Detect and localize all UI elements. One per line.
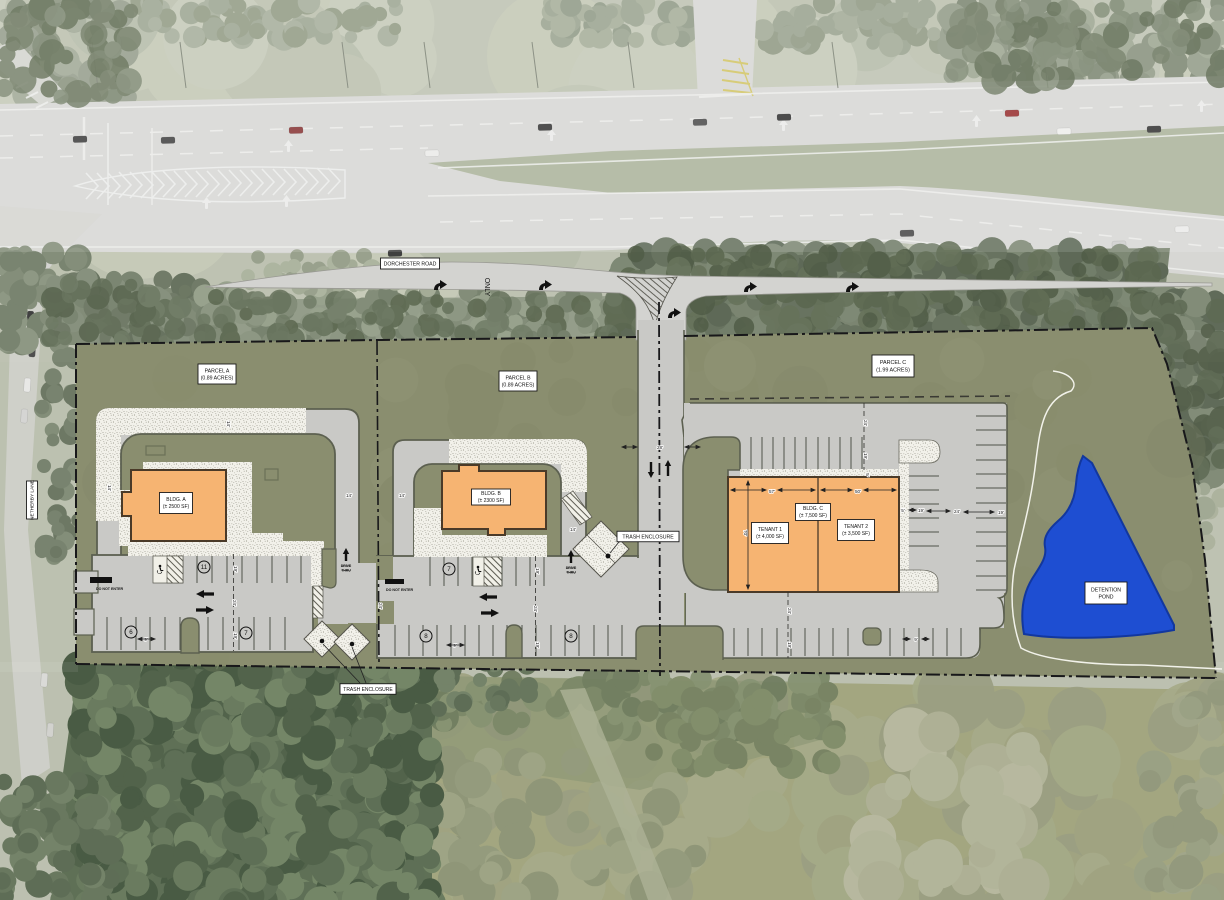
- svg-text:19': 19': [535, 568, 540, 574]
- svg-text:BLDG. B: BLDG. B: [481, 491, 501, 497]
- svg-text:14': 14': [226, 421, 231, 427]
- svg-text:THRU: THRU: [566, 571, 576, 575]
- svg-text:11: 11: [201, 564, 208, 571]
- svg-text:19': 19': [863, 453, 868, 459]
- svg-text:14': 14': [346, 493, 352, 498]
- svg-text:TENANT 1: TENANT 1: [758, 527, 782, 533]
- svg-text:THRU: THRU: [341, 569, 351, 573]
- svg-text:(0.89 ACRES): (0.89 ACRES): [502, 382, 535, 388]
- svg-text:19': 19': [787, 642, 792, 648]
- svg-text:24': 24': [863, 420, 868, 426]
- svg-text:7: 7: [244, 630, 248, 637]
- svg-text:(1.99 ACRES): (1.99 ACRES): [876, 368, 910, 374]
- svg-text:24': 24': [954, 509, 960, 514]
- svg-text:9': 9': [144, 637, 148, 642]
- svg-text:BLDG. C: BLDG. C: [803, 506, 823, 512]
- svg-text:(± 7,500 SF): (± 7,500 SF): [799, 513, 827, 519]
- svg-text:9': 9': [914, 637, 918, 642]
- svg-text:DO NOT ENTER: DO NOT ENTER: [386, 588, 414, 592]
- svg-text:14': 14': [107, 485, 112, 491]
- svg-text:7: 7: [447, 566, 451, 573]
- svg-text:(± 2300 SF): (± 2300 SF): [478, 498, 505, 504]
- svg-text:50': 50': [855, 489, 861, 494]
- svg-text:19': 19': [998, 510, 1004, 515]
- svg-text:19': 19': [918, 508, 924, 513]
- svg-text:DORCHESTER ROAD: DORCHESTER ROAD: [384, 261, 437, 267]
- svg-text:PARCEL B: PARCEL B: [505, 375, 531, 381]
- svg-text:NETHERBY LANE: NETHERBY LANE: [30, 480, 36, 520]
- svg-text:14': 14': [570, 527, 576, 532]
- svg-text:19': 19': [233, 566, 238, 572]
- svg-text:(± 3,500 SF): (± 3,500 SF): [842, 531, 870, 537]
- svg-text:57': 57': [769, 489, 775, 494]
- svg-text:8: 8: [569, 633, 573, 640]
- svg-text:24': 24': [533, 606, 538, 612]
- svg-text:TENANT 2: TENANT 2: [844, 524, 868, 530]
- svg-text:19': 19': [233, 633, 238, 639]
- svg-text:6: 6: [129, 629, 133, 636]
- svg-text:(± 2500 SF): (± 2500 SF): [163, 504, 190, 510]
- svg-text:PARCEL C: PARCEL C: [880, 360, 906, 366]
- svg-text:14': 14': [399, 493, 405, 498]
- svg-text:DO NOT ENTER: DO NOT ENTER: [96, 587, 124, 591]
- svg-text:5': 5': [865, 473, 870, 477]
- svg-text:POND: POND: [1099, 594, 1114, 600]
- svg-text:9': 9': [453, 643, 457, 648]
- svg-text:28': 28': [657, 445, 663, 450]
- svg-text:BLDG. A: BLDG. A: [166, 497, 186, 503]
- svg-text:TRASH ENCLOSURE: TRASH ENCLOSURE: [622, 534, 674, 540]
- svg-text:70': 70': [743, 530, 748, 536]
- svg-text:24': 24': [232, 600, 237, 606]
- svg-text:5': 5': [901, 508, 905, 513]
- svg-text:PARCEL A: PARCEL A: [205, 368, 230, 374]
- svg-text:24': 24': [378, 603, 383, 609]
- svg-text:19': 19': [535, 642, 540, 648]
- svg-text:TRASH ENCLOSURE: TRASH ENCLOSURE: [343, 687, 393, 693]
- svg-text:8: 8: [424, 633, 428, 640]
- svg-text:(± 4,000 SF): (± 4,000 SF): [756, 534, 784, 540]
- svg-text:(0.89 ACRES): (0.89 ACRES): [201, 375, 234, 381]
- svg-text:DRIVE: DRIVE: [341, 564, 352, 568]
- svg-text:24': 24': [787, 608, 792, 614]
- svg-text:DETENTION: DETENTION: [1091, 587, 1121, 593]
- svg-text:ONLY: ONLY: [483, 278, 490, 297]
- svg-text:DRIVE: DRIVE: [566, 566, 577, 570]
